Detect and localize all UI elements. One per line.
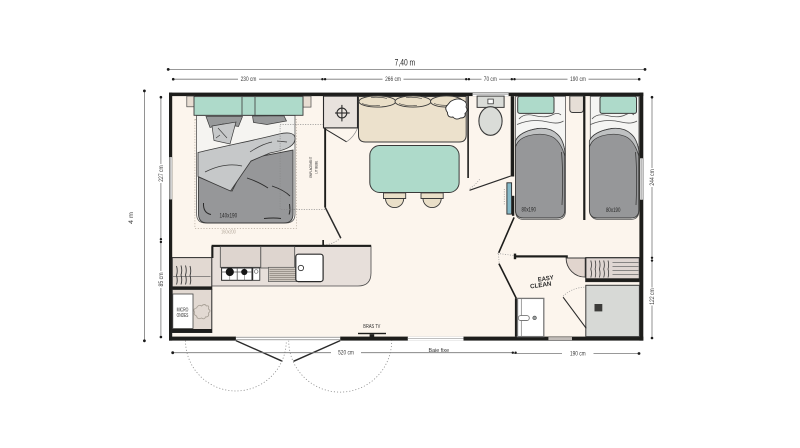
svg-text:80x190: 80x190 [606,207,621,214]
svg-text:230 cm: 230 cm [241,77,257,83]
svg-text:190 cm: 190 cm [570,77,586,83]
svg-text:70 cm: 70 cm [484,77,497,83]
svg-text:85 cm: 85 cm [159,273,165,287]
svg-text:160x200: 160x200 [221,230,236,236]
svg-text:BRAS TV: BRAS TV [363,324,380,330]
svg-text:4 m: 4 m [128,212,135,224]
svg-text:Baie fixe: Baie fixe [429,348,450,354]
svg-text:140x190: 140x190 [219,213,237,220]
svg-text:520 cm: 520 cm [338,351,354,357]
svg-text:266 cm: 266 cm [385,77,401,83]
svg-text:LIT BEBE: LIT BEBE [313,160,318,173]
svg-text:244 cm: 244 cm [650,169,656,186]
svg-text:122 cm: 122 cm [650,288,656,305]
svg-text:80x190: 80x190 [521,207,536,214]
svg-text:227 cm: 227 cm [159,165,165,182]
svg-text:190 cm: 190 cm [570,352,586,358]
svg-text:ONDES: ONDES [177,313,189,319]
svg-text:7,40 m: 7,40 m [395,57,416,68]
